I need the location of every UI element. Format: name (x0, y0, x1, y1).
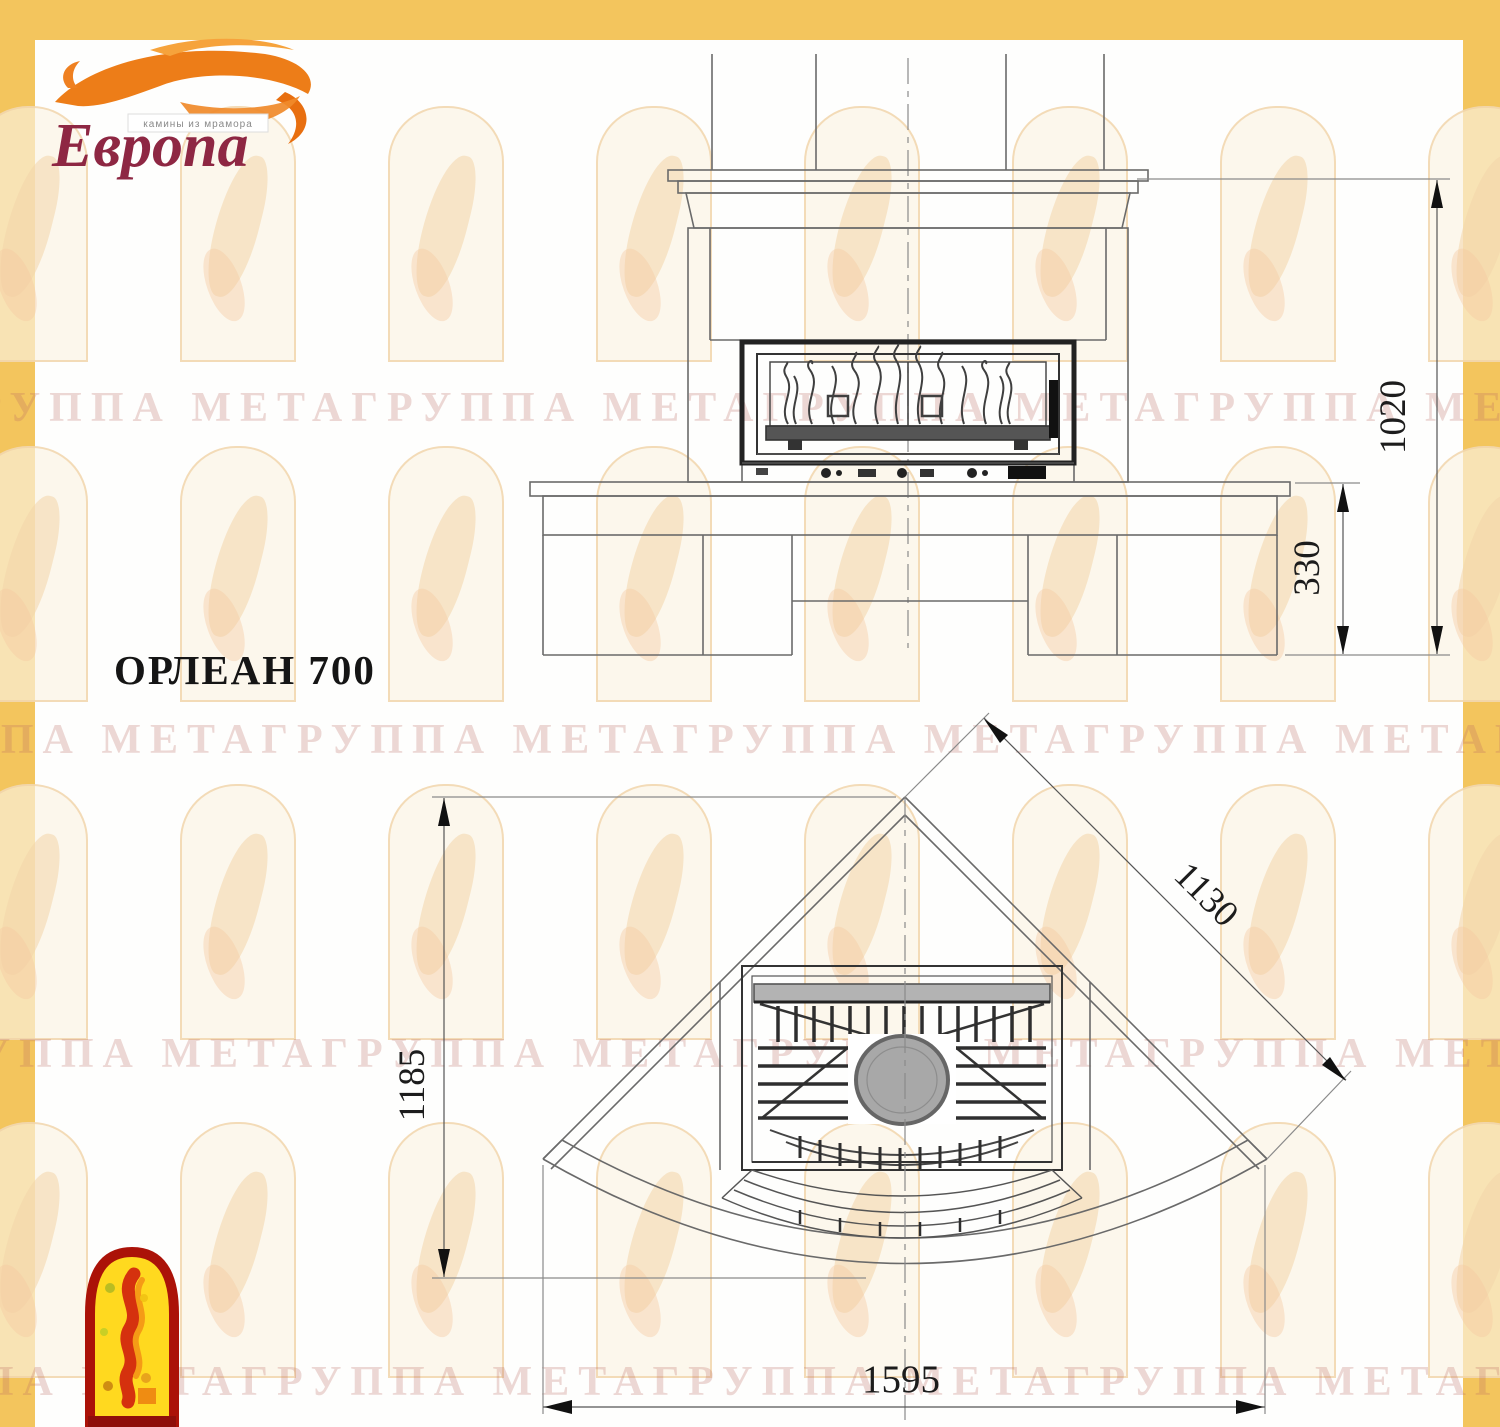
model-title: ОРЛЕАН 700 (114, 646, 376, 694)
dim-depth: 1185 (392, 797, 896, 1278)
dim-label-1185: 1185 (392, 1049, 433, 1122)
technical-drawing: 1020 330 (0, 0, 1500, 1427)
brand-logo: Европа камины из мрамора (30, 34, 330, 204)
dim-label-330: 330 (1287, 540, 1328, 596)
flue-collar (856, 1036, 948, 1124)
plan-view: 1185 1130 1595 (392, 713, 1351, 1420)
dim-base-height: 330 (1287, 483, 1360, 654)
dim-label-1130: 1130 (1166, 855, 1246, 935)
dim-diagonal: 1130 (905, 713, 1351, 1159)
flame-grille (784, 344, 1011, 424)
dim-width: 1595 (543, 1165, 1265, 1414)
brand-tagline: камины из мрамора (143, 119, 253, 130)
grate-bar (766, 426, 1050, 440)
dim-label-1595: 1595 (862, 1358, 940, 1401)
firebird-arch-icon (88, 1252, 176, 1427)
front-elevation-view: 1020 330 (530, 54, 1450, 655)
door-handle (1049, 380, 1058, 438)
plan-front-steps (722, 1170, 1082, 1238)
hearth-slab (530, 482, 1290, 535)
firebox-insert (742, 342, 1074, 479)
plan-fan-bars (800, 1136, 1000, 1170)
base-pedestals (543, 535, 1277, 655)
page: ГРУППА МЕТАГРУППА МЕТАГРУППА МЕТАГРУППА … (0, 0, 1500, 1427)
dim-label-1020: 1020 (1373, 380, 1414, 454)
plan-firebox (742, 966, 1062, 1170)
firebird-logo (80, 1236, 184, 1427)
